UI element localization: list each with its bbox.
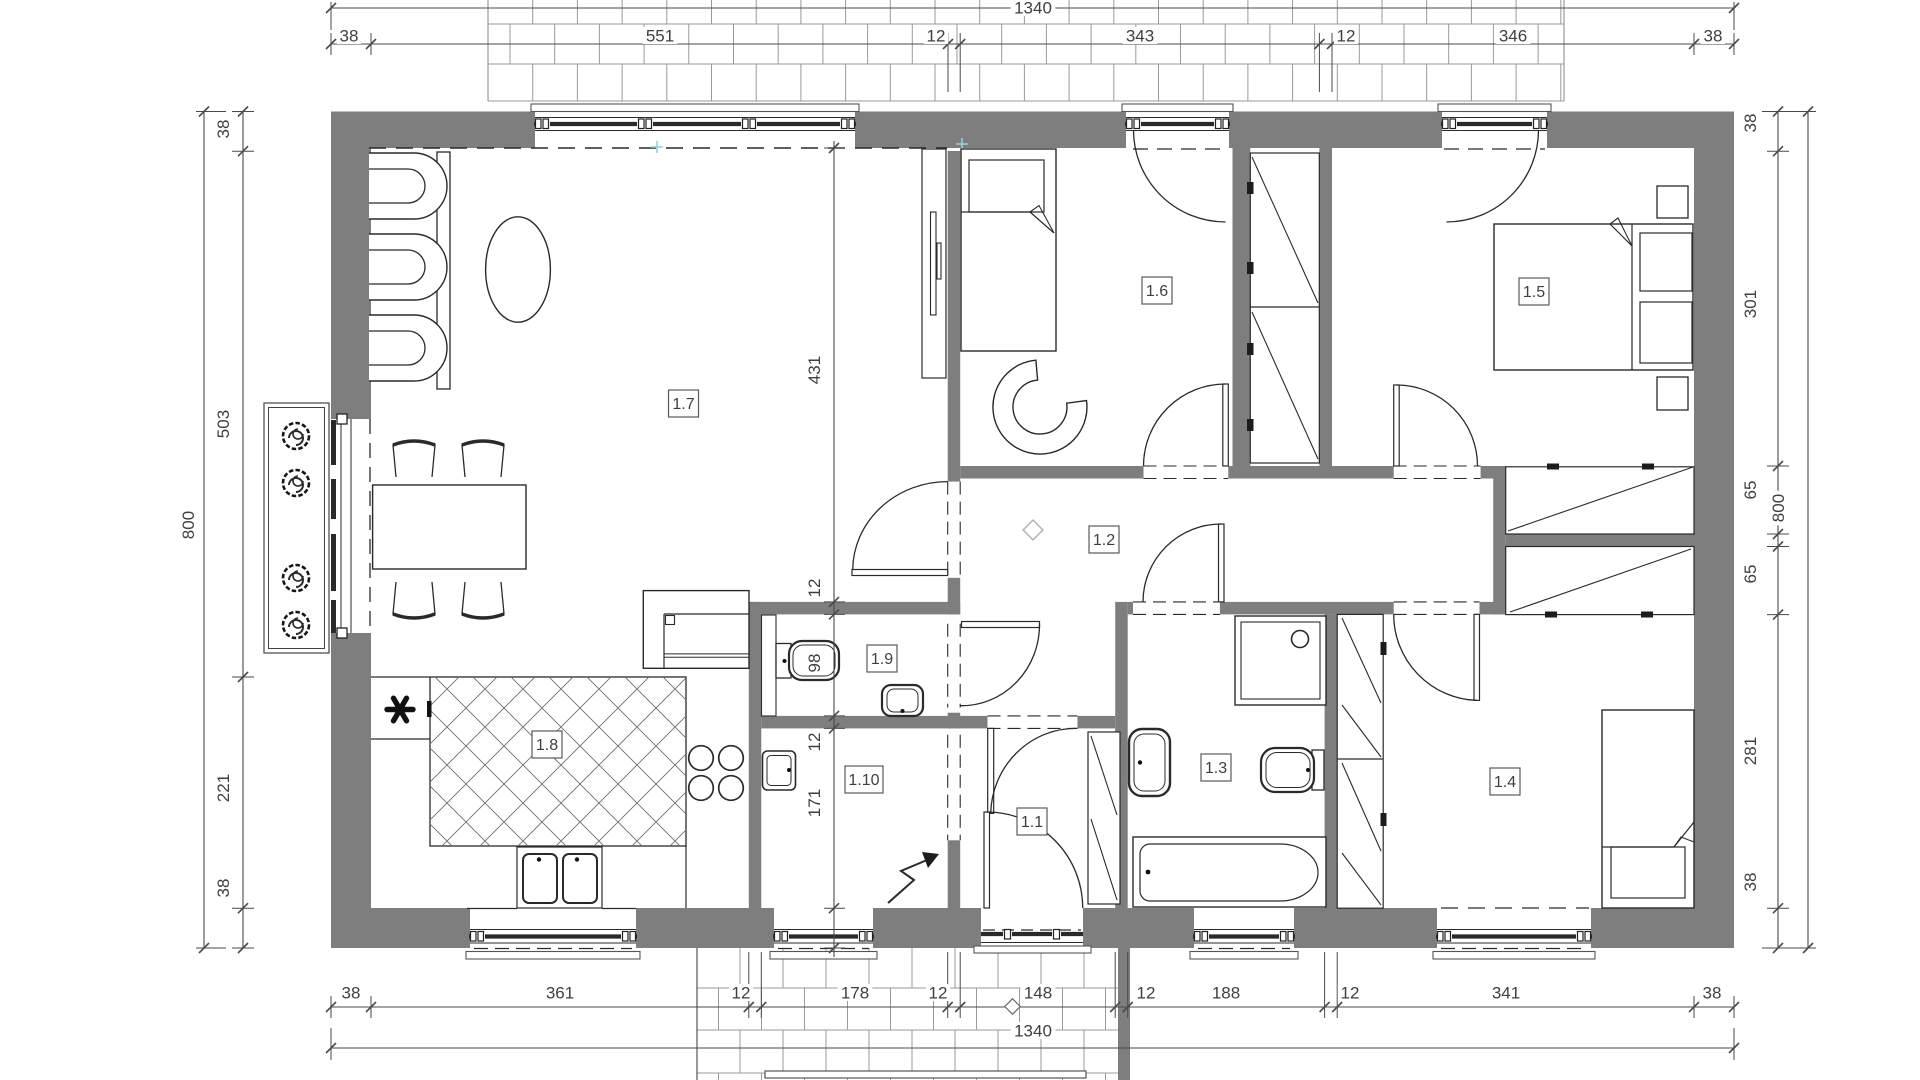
svg-text:188: 188 xyxy=(1212,984,1240,1003)
svg-text:1340: 1340 xyxy=(1014,0,1052,18)
svg-text:800: 800 xyxy=(1769,494,1788,522)
svg-text:38: 38 xyxy=(1704,27,1723,46)
svg-text:98: 98 xyxy=(805,654,824,673)
svg-text:12: 12 xyxy=(805,579,824,598)
svg-text:12: 12 xyxy=(732,984,751,1003)
svg-text:1.4: 1.4 xyxy=(1494,774,1516,791)
svg-text:1.9: 1.9 xyxy=(871,651,893,668)
svg-text:12: 12 xyxy=(1337,27,1356,46)
svg-text:1.3: 1.3 xyxy=(1205,760,1227,777)
svg-text:38: 38 xyxy=(342,984,361,1003)
svg-text:503: 503 xyxy=(214,410,233,438)
svg-text:431: 431 xyxy=(805,356,824,384)
svg-text:12: 12 xyxy=(929,984,948,1003)
svg-text:148: 148 xyxy=(1024,984,1052,1003)
svg-text:343: 343 xyxy=(1126,27,1154,46)
svg-text:551: 551 xyxy=(646,27,674,46)
svg-text:38: 38 xyxy=(1703,984,1722,1003)
svg-text:1.5: 1.5 xyxy=(1523,284,1545,301)
svg-text:1.10: 1.10 xyxy=(848,772,879,789)
svg-text:346: 346 xyxy=(1499,27,1527,46)
svg-text:281: 281 xyxy=(1741,737,1760,765)
svg-text:1.1: 1.1 xyxy=(1021,814,1043,831)
svg-text:1.2: 1.2 xyxy=(1093,532,1115,549)
svg-text:38: 38 xyxy=(340,27,359,46)
svg-text:1.8: 1.8 xyxy=(536,737,558,754)
svg-text:1.6: 1.6 xyxy=(1146,283,1168,300)
svg-text:65: 65 xyxy=(1741,565,1760,584)
svg-text:65: 65 xyxy=(1741,481,1760,500)
svg-text:301: 301 xyxy=(1741,290,1760,318)
svg-text:178: 178 xyxy=(841,984,869,1003)
svg-text:341: 341 xyxy=(1492,984,1520,1003)
svg-text:1340: 1340 xyxy=(1014,1022,1052,1041)
svg-text:171: 171 xyxy=(805,789,824,817)
svg-text:1.7: 1.7 xyxy=(672,396,694,413)
svg-text:38: 38 xyxy=(214,879,233,898)
svg-text:38: 38 xyxy=(1741,873,1760,892)
svg-text:361: 361 xyxy=(546,984,574,1003)
svg-text:12: 12 xyxy=(1137,984,1156,1003)
svg-text:38: 38 xyxy=(1741,114,1760,133)
svg-text:221: 221 xyxy=(214,774,233,802)
svg-text:12: 12 xyxy=(1341,984,1360,1003)
svg-text:800: 800 xyxy=(179,511,198,539)
svg-text:12: 12 xyxy=(805,733,824,752)
svg-text:12: 12 xyxy=(927,27,946,46)
svg-text:38: 38 xyxy=(214,120,233,139)
